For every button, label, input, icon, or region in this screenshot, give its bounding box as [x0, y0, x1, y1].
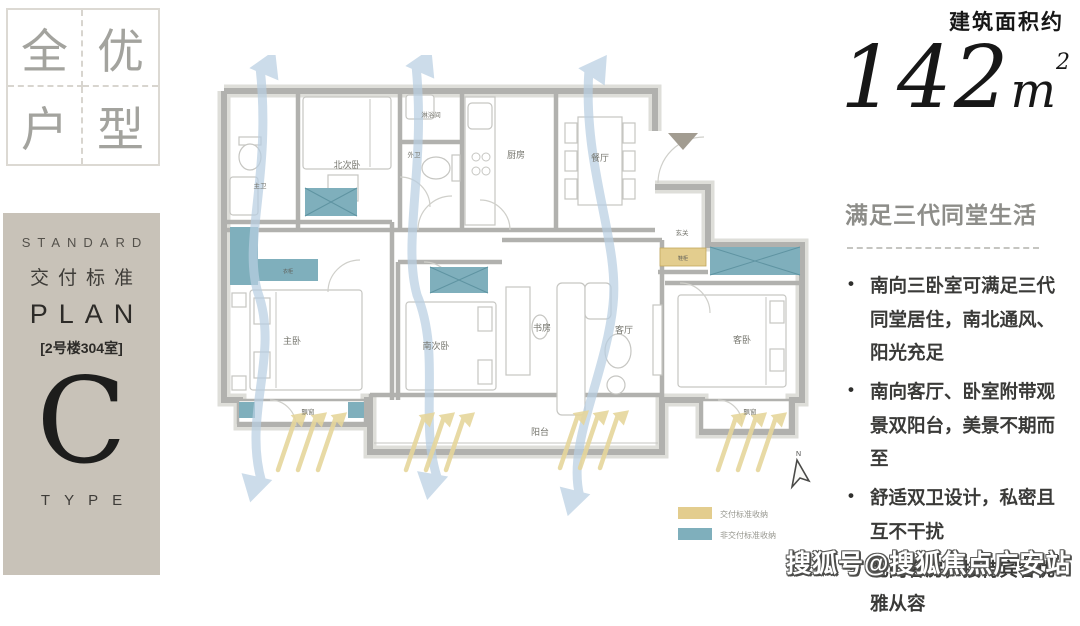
badge-char: 户 [8, 87, 83, 164]
standard-plan-card: STANDARD 交付标准 PLAN [2号楼304室] C TYPE [3, 213, 160, 575]
area-sup: 2 [1056, 50, 1070, 75]
room-label-study: 书房 [533, 322, 551, 333]
selling-points-title: 满足三代同堂生活 [845, 196, 1073, 230]
room-label-north-bedroom: 北次卧 [333, 159, 360, 170]
card-subtitle: 交付标准 [3, 263, 160, 290]
dashed-divider [847, 247, 1039, 249]
room-label-living: 客厅 [615, 324, 633, 335]
built-area-block: 建筑面积约 142m2 [830, 6, 1070, 120]
room-label-dining: 餐厅 [591, 152, 609, 163]
room-label-shower: 淋浴间 [421, 110, 441, 119]
room-label-south-bedroom: 南次卧 [422, 340, 449, 351]
legend-swatch-nonstandard [678, 528, 712, 540]
card-title: PLAN [3, 299, 160, 330]
room-label-guest-bath: 外卫 [408, 150, 422, 159]
entrance-arrow [668, 133, 698, 150]
floor-plan: 衣柜 鞋柜 主卫 北次卧 淋浴间 外卫 厨房 餐厅 玄关 主卧 南次卧 书房 客 [210, 55, 825, 565]
selling-point: 舒适双卫设计，私密且互不干扰 [845, 481, 1073, 548]
legend-swatch-standard [678, 507, 712, 519]
wardrobe-label: 衣柜 [283, 268, 293, 275]
room-label-kitchen: 厨房 [507, 149, 525, 160]
area-unit: m [1010, 63, 1056, 119]
sohu-watermark: 搜狐号@搜狐焦点广安站 [786, 544, 1071, 580]
quality-layout-badge: 全 优 户 型 [6, 8, 160, 166]
room-label-balcony: 阳台 [531, 426, 549, 437]
selling-point: 南向客厅、卧室附带观景双阳台，美景不期而至 [845, 375, 1073, 476]
shoe-cabinet-label: 鞋柜 [678, 255, 688, 262]
selling-point: 南向三卧室可满足三代同堂居住，南北通风、阳光充足 [845, 269, 1073, 370]
north-arrow-glyph [792, 460, 809, 487]
card-eyebrow: STANDARD [3, 235, 160, 250]
room-label-guest-bedroom: 客卧 [733, 334, 751, 345]
plan-legend: 交付标准收纳 非交付标准收纳 [678, 507, 776, 540]
area-value: 142m2 [830, 38, 1070, 120]
room-label-foyer: 玄关 [676, 228, 690, 237]
north-arrow: N [792, 451, 809, 487]
legend-label-standard: 交付标准收纳 [720, 509, 768, 519]
room-label-master-bath: 主卫 [254, 181, 268, 190]
area-number: 142 [840, 28, 1010, 128]
room-label-bay-window: 飘窗 [302, 407, 315, 416]
plan-type-letter: C [3, 360, 160, 484]
card-footer: TYPE [3, 492, 160, 509]
balcony-outline [238, 395, 790, 452]
north-label: N [796, 451, 801, 458]
badge-char: 全 [8, 10, 83, 87]
badge-char: 型 [83, 87, 158, 164]
room-label-master-bedroom: 主卧 [283, 335, 301, 346]
badge-char: 优 [83, 10, 158, 87]
legend-label-nonstandard: 非交付标准收纳 [720, 530, 776, 540]
room-label-bay-window: 飘窗 [744, 407, 757, 416]
